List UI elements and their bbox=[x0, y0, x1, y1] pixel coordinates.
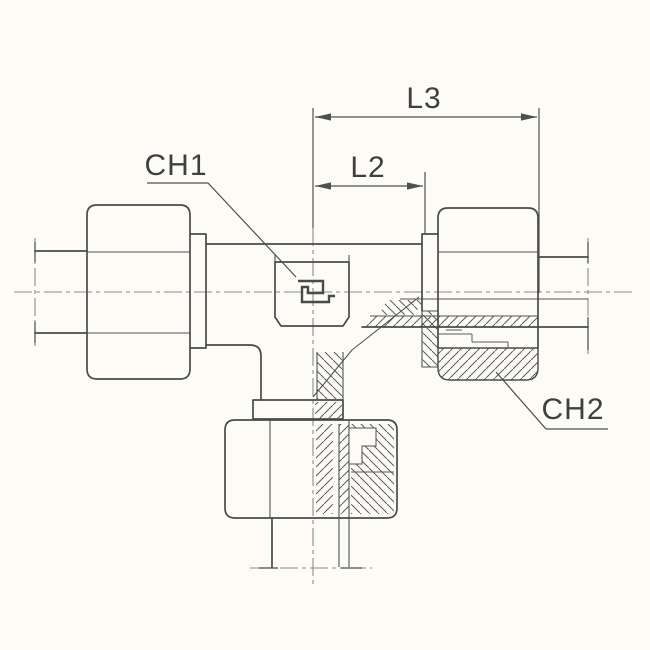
label-l3: L3 bbox=[406, 82, 441, 115]
right-nut-section-hatch bbox=[438, 348, 538, 380]
bottom-tube-wall-section-hatch bbox=[339, 424, 349, 514]
branch-body-section-hatch bbox=[317, 352, 343, 399]
paper-background bbox=[0, 0, 650, 650]
label-ch2: CH2 bbox=[541, 393, 604, 426]
label-l2: L2 bbox=[350, 151, 385, 184]
technical-drawing-page: L3 L2 CH1 CH2 bbox=[0, 0, 650, 650]
bottom-nut-inner-section-hatch bbox=[316, 424, 333, 514]
right-collar-section-hatch bbox=[422, 311, 438, 367]
label-ch1: CH1 bbox=[144, 149, 207, 182]
branch-flange-section-hatch bbox=[315, 402, 343, 418]
tee-fitting-diagram: L3 L2 CH1 CH2 bbox=[0, 0, 650, 650]
